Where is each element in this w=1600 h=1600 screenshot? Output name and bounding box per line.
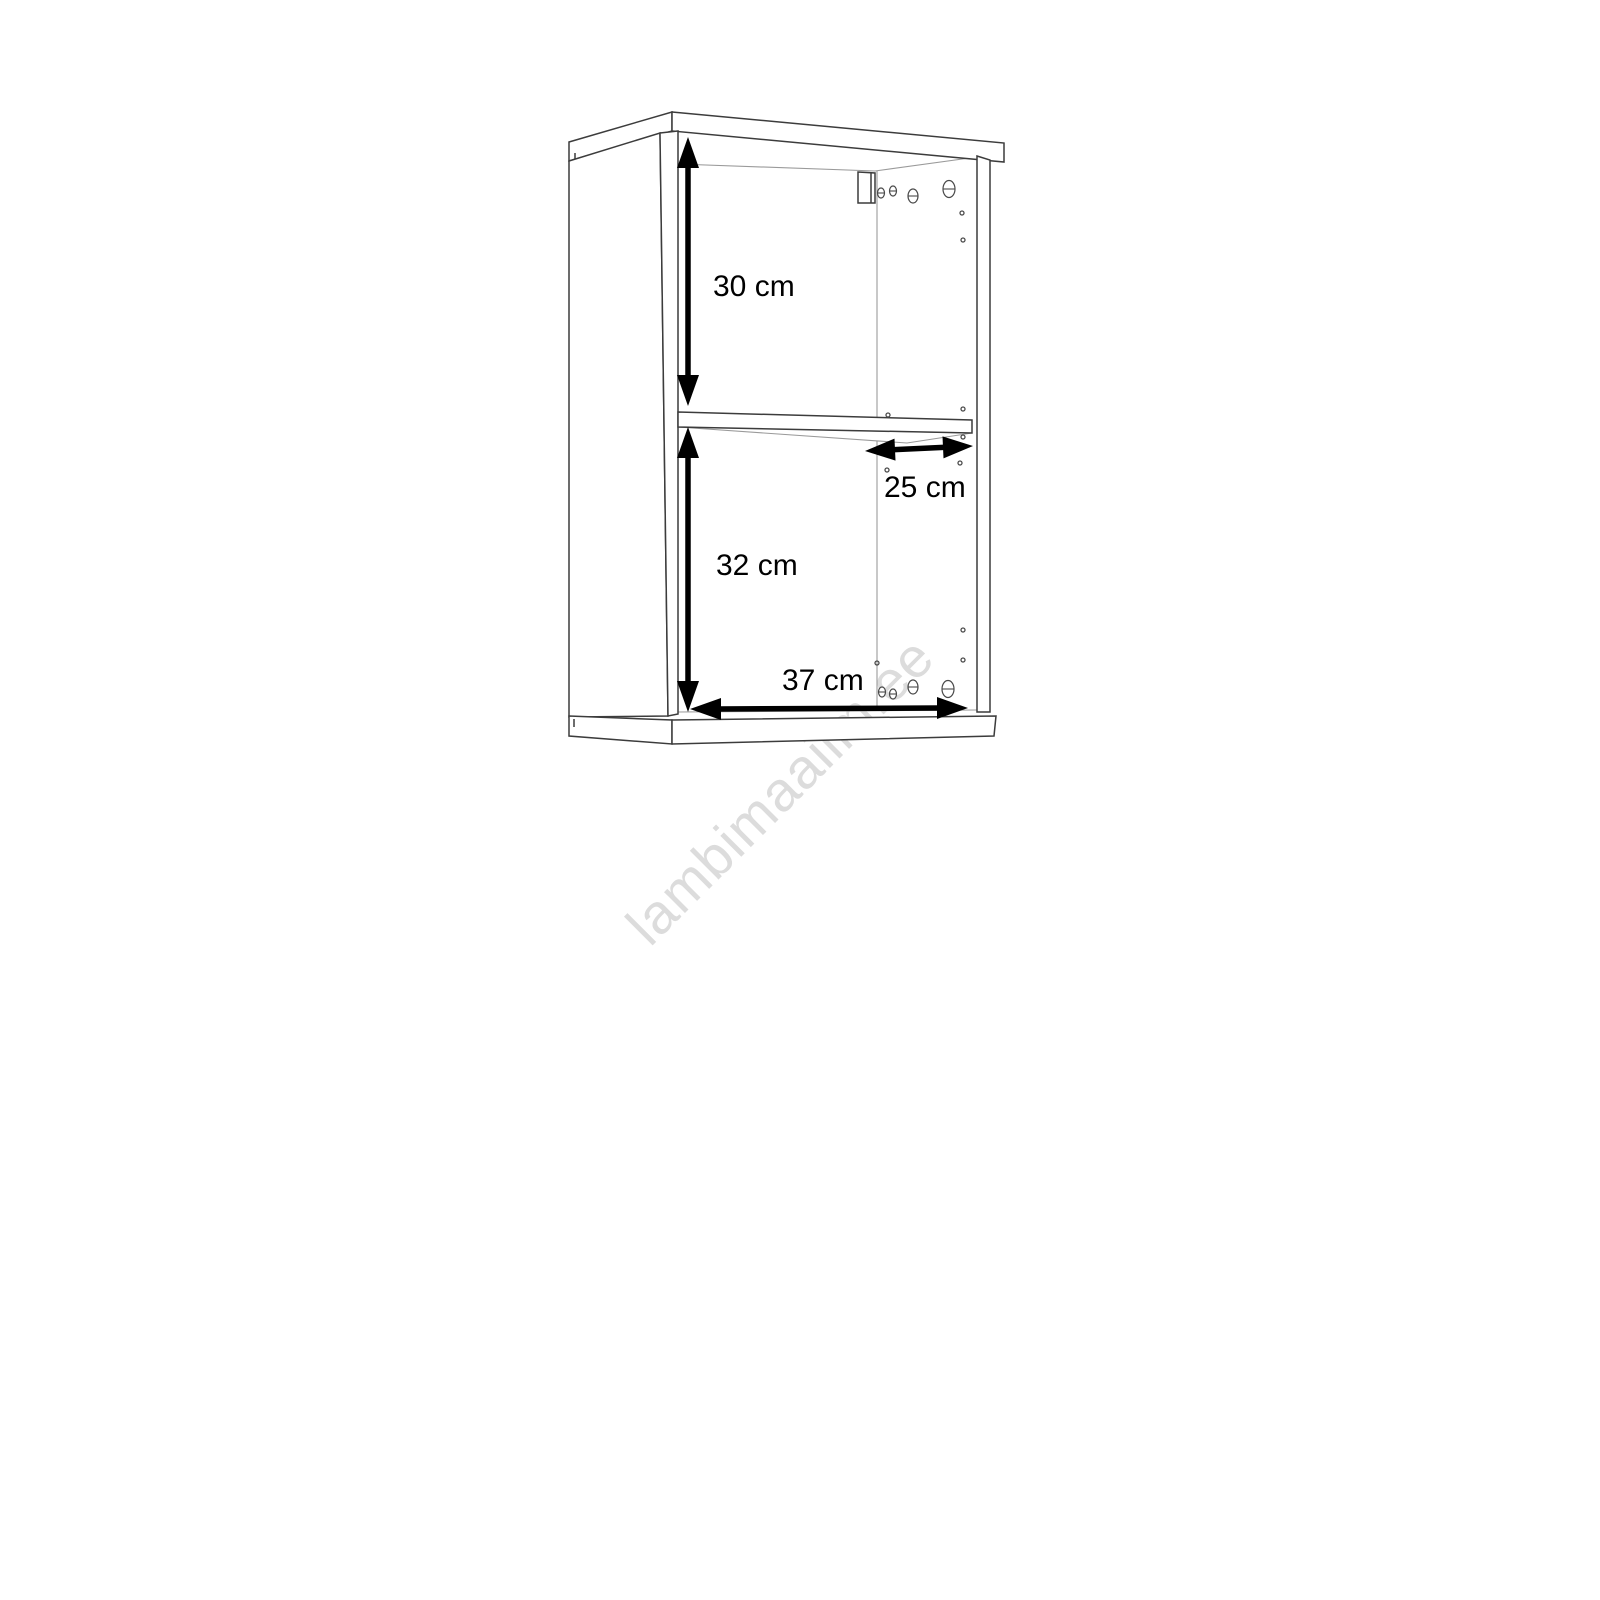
dimension-shelf-depth: 25 cm — [865, 436, 973, 504]
pin-hole-dot — [961, 435, 965, 439]
top-panel-front-face — [672, 112, 1004, 162]
bottom-panel — [569, 716, 996, 744]
wall-bracket — [858, 172, 875, 203]
pin-hole-dot — [961, 658, 965, 662]
arrow-right-head — [943, 436, 974, 458]
arrow-shaft — [892, 447, 946, 450]
left-side-outer-face — [569, 133, 668, 717]
ceiling-right-edge — [875, 157, 977, 171]
pin-hole-dot — [958, 461, 962, 465]
bottom-panel-front-face — [672, 716, 996, 744]
arrow-up-head — [677, 137, 699, 168]
pin-hole-dot — [961, 238, 965, 242]
right-side-front-edge — [977, 156, 990, 712]
left-side-panel — [569, 131, 678, 717]
pin-hole-dot — [960, 211, 964, 215]
arrow-up-head — [677, 427, 699, 458]
wall-bracket-body — [858, 172, 875, 203]
dimension-shelf-depth-label: 25 cm — [884, 471, 966, 504]
arrow-down-head — [677, 375, 699, 406]
dimension-upper-height: 30 cm — [677, 137, 795, 406]
dimension-lower-height-label: 32 cm — [716, 549, 798, 582]
cabinet-dimension-diagram: lambimaailm.ee — [0, 0, 1600, 1600]
bottom-panel-left-face — [569, 716, 672, 744]
arrow-shaft — [718, 708, 940, 709]
shelf — [678, 412, 972, 443]
pin-hole-dot — [886, 413, 890, 417]
ceiling-back-edge — [678, 164, 875, 171]
dimension-upper-height-label: 30 cm — [713, 270, 795, 303]
dimension-interior-width-label: 37 cm — [782, 664, 864, 697]
dimension-lower-height: 32 cm — [677, 427, 798, 712]
pin-hole-dot — [961, 407, 965, 411]
arrow-left-head — [865, 439, 896, 461]
pin-hole-dot — [961, 628, 965, 632]
arrow-left-head — [690, 698, 721, 720]
